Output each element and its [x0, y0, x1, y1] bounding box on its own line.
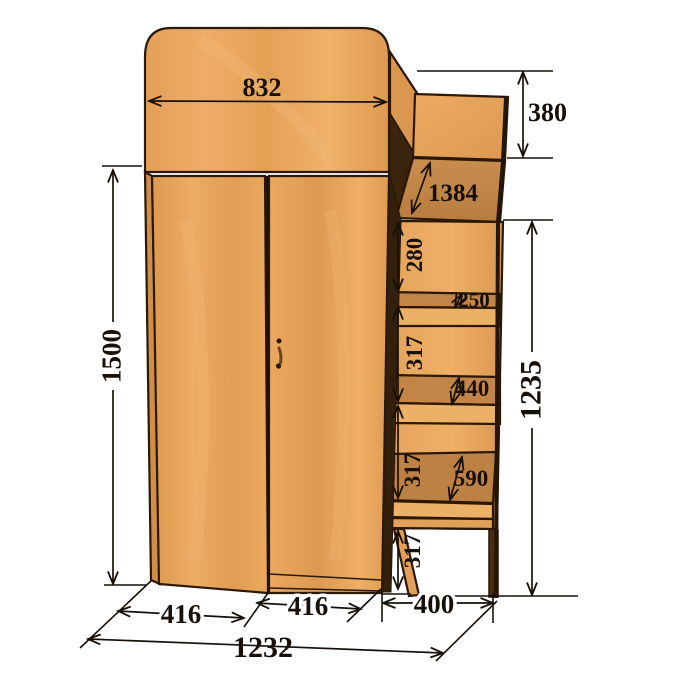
label-tower-height: 1235 — [515, 360, 548, 420]
bottom-rail-band — [387, 518, 493, 529]
technical-drawing-canvas: 832 380 1384 280 250 317 440 317 590 317… — [0, 0, 700, 700]
bottom-shelf-front-band — [385, 501, 493, 519]
keyhole-bottom-dot — [276, 363, 281, 368]
label-wardrobe-height: 1500 — [96, 329, 126, 383]
label-gap-below-worktop: 280 — [402, 238, 427, 273]
furniture-dimension-drawing: 832 380 1384 280 250 317 440 317 590 317… — [0, 0, 700, 700]
label-bottom-shelf-depth: 590 — [454, 466, 489, 491]
label-gap-upper: 317 — [402, 336, 427, 371]
label-gap-lower: 317 — [400, 453, 425, 488]
label-tower-depth: 400 — [414, 589, 455, 619]
shelf-tower — [385, 52, 508, 598]
label-right-door-width: 416 — [288, 591, 329, 621]
upper-box-front-face — [413, 94, 508, 160]
middle-shelf-front-band — [390, 403, 500, 424]
label-leg-height: 317 — [400, 534, 425, 569]
label-upper-box-height: 380 — [528, 98, 567, 127]
ray-left-corner — [80, 580, 152, 648]
keyhole-top-dot — [277, 339, 282, 344]
label-top-panel-width: 832 — [243, 73, 282, 102]
wardrobe — [145, 28, 401, 593]
label-top-shelf-depth: 250 — [458, 288, 490, 312]
label-total-width: 1232 — [233, 631, 293, 664]
label-left-door-width: 416 — [161, 599, 202, 629]
label-worktop-panel-length: 1384 — [428, 180, 479, 207]
left-door — [152, 176, 268, 593]
label-middle-shelf-depth: 440 — [455, 376, 490, 401]
ray-door-divider — [244, 593, 268, 627]
